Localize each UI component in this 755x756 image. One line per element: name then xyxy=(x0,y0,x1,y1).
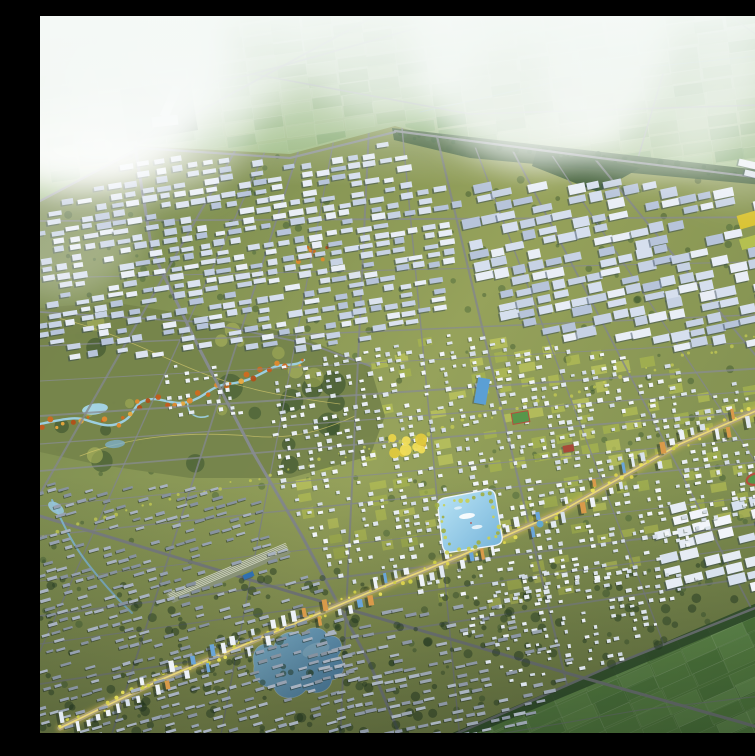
midrise-center xyxy=(548,545,553,550)
midrise-center xyxy=(312,532,317,537)
midrise-center xyxy=(466,447,471,451)
midrise-center xyxy=(276,388,280,393)
midrise-center xyxy=(712,442,716,445)
autumn-trees xyxy=(61,422,65,426)
midrise-center xyxy=(533,402,538,407)
midrise-center xyxy=(554,346,558,351)
midrise-center xyxy=(710,502,714,506)
boulevard-trees xyxy=(630,475,634,479)
midrise-center xyxy=(400,364,404,369)
midrise-center xyxy=(589,468,593,472)
city-forest-dots xyxy=(492,449,496,453)
boulevard-trees xyxy=(672,446,676,450)
boulevard-trees xyxy=(619,475,623,479)
midrise-center xyxy=(458,461,462,466)
boulevard-trees xyxy=(446,562,449,565)
avenue-trees xyxy=(618,375,622,379)
midrise-center xyxy=(401,427,405,431)
midrise-center xyxy=(470,581,474,585)
city-forest-dots xyxy=(465,306,472,313)
midrise-center xyxy=(524,594,530,599)
midrise-center xyxy=(559,488,565,493)
midrise-center xyxy=(300,412,304,417)
boulevard-trees xyxy=(114,696,118,700)
midrise-center xyxy=(621,539,625,543)
midrise-center xyxy=(292,483,297,487)
autumn-trees xyxy=(55,426,58,429)
midrise-center xyxy=(647,374,651,379)
midrise-south xyxy=(695,576,699,580)
midrise-center xyxy=(358,502,363,507)
avenue-trees xyxy=(593,385,596,388)
midrise-center xyxy=(477,565,483,570)
boulevard-trees xyxy=(608,481,611,484)
midrise-center xyxy=(385,352,390,357)
midrise-south xyxy=(594,640,598,644)
boulevard-trees xyxy=(423,567,425,569)
midrise-center xyxy=(582,370,587,374)
boulevard-trees xyxy=(513,535,517,539)
city-forest-dots xyxy=(482,293,486,297)
midrise-center xyxy=(503,348,507,352)
midrise-south xyxy=(659,590,663,594)
midrise-center xyxy=(462,364,466,367)
midrise-center xyxy=(296,392,301,397)
midrise-center xyxy=(577,403,581,407)
boulevard-trees xyxy=(121,691,125,695)
midrise-south xyxy=(561,621,565,625)
boulevard-trees xyxy=(646,460,649,463)
midrise-center xyxy=(483,413,487,417)
midrise-center xyxy=(544,401,549,406)
boulevard-trees xyxy=(567,506,570,509)
autumn-trees xyxy=(206,392,210,396)
avenue-trees xyxy=(427,432,431,436)
midrise-center xyxy=(357,481,361,484)
city-forest-dots xyxy=(385,437,389,441)
midrise-center xyxy=(558,541,563,546)
boulevard-trees xyxy=(503,541,506,544)
midrise-center xyxy=(275,381,279,385)
city-forest-dots xyxy=(252,251,256,255)
midrise-center xyxy=(326,554,331,559)
midrise-center xyxy=(686,542,690,547)
avenue-trees xyxy=(603,381,605,383)
midrise-center xyxy=(353,405,358,410)
avenue-trees xyxy=(345,456,347,458)
midrise-center xyxy=(684,528,689,533)
midrise-center xyxy=(437,451,441,455)
avenue-trees xyxy=(654,369,657,372)
midrise-center xyxy=(407,531,411,535)
avenue-trees xyxy=(287,468,289,470)
midrise-center xyxy=(336,490,340,494)
boulevard-trees xyxy=(200,662,202,664)
midrise-center xyxy=(584,387,588,391)
midrise-center xyxy=(355,534,359,538)
autumn-trees xyxy=(238,378,244,384)
avenue-trees xyxy=(628,371,630,373)
midrise-center xyxy=(555,405,559,409)
midrise-center xyxy=(508,370,512,374)
midrise-center xyxy=(323,539,328,544)
city-forest-dots xyxy=(725,241,732,248)
park-forest xyxy=(321,371,346,396)
avenue-trees xyxy=(76,522,79,525)
midrise-center xyxy=(700,495,704,499)
city-forest-dots xyxy=(638,432,643,437)
midrise-center xyxy=(390,367,394,372)
avenue-trees xyxy=(56,530,60,534)
lawn-blocks xyxy=(489,460,503,473)
city-forest-dots xyxy=(465,191,471,197)
city-forest-dots xyxy=(465,351,468,354)
midrise-center xyxy=(325,484,330,488)
autumn-trees xyxy=(274,361,279,366)
autumn-trees xyxy=(301,359,304,362)
midrise-center xyxy=(429,419,433,424)
midrise-south xyxy=(554,639,558,643)
midrise-center xyxy=(466,438,470,441)
midrise-center xyxy=(696,526,700,530)
midrise-center xyxy=(451,351,455,354)
midrise-center xyxy=(540,438,544,442)
avenue-trees xyxy=(219,487,222,490)
midrise-center xyxy=(362,395,366,399)
midrise-center xyxy=(695,411,699,415)
midrise-center xyxy=(297,384,301,387)
midrise-center xyxy=(356,548,360,552)
midrise-center xyxy=(449,401,454,406)
city-forest-dots xyxy=(98,472,103,477)
avenue-trees xyxy=(491,417,493,419)
avenue-trees xyxy=(554,393,557,396)
midrise-center xyxy=(396,517,400,522)
midrise-center xyxy=(581,424,585,428)
midrise-center xyxy=(510,506,514,511)
midrise-center xyxy=(611,428,615,432)
midrise-center xyxy=(281,485,285,489)
midrise-center xyxy=(696,421,700,425)
midrise-center xyxy=(617,388,621,392)
midrise-center xyxy=(519,505,524,510)
boulevard-trees xyxy=(546,521,548,523)
midrise-center xyxy=(283,424,287,428)
midrise-center xyxy=(589,477,593,481)
midrise-center xyxy=(735,390,739,393)
boulevard-trees xyxy=(379,592,383,596)
midrise-center xyxy=(724,460,729,465)
midrise-center xyxy=(445,381,448,384)
avenue-trees xyxy=(478,414,482,418)
boulevard-trees xyxy=(393,581,396,584)
city-forest-dots xyxy=(590,390,595,395)
park-forest xyxy=(217,374,243,400)
midrise-south xyxy=(536,643,539,646)
scene-svg xyxy=(40,16,755,740)
avenue-trees xyxy=(687,351,690,354)
midrise-center xyxy=(530,564,534,567)
midrise-center xyxy=(381,505,385,508)
midrise-center xyxy=(542,446,546,450)
midrise-center xyxy=(409,416,413,420)
city-forest-dots xyxy=(657,354,660,357)
midrise-center xyxy=(453,364,457,367)
midrise-south xyxy=(630,612,635,616)
minipark-autumn xyxy=(321,257,325,261)
midrise-center xyxy=(636,437,641,441)
midrise-center xyxy=(649,383,654,388)
city-forest-dots xyxy=(450,278,456,284)
avenue-trees xyxy=(177,493,180,496)
avenue-trees xyxy=(149,503,152,506)
midrise-center xyxy=(348,559,352,563)
midrise-center xyxy=(734,399,738,402)
midrise-center xyxy=(378,376,382,381)
avenue-trees xyxy=(258,478,260,480)
avenue-trees xyxy=(578,390,581,393)
midrise-center xyxy=(483,480,489,485)
midrise-center xyxy=(451,418,455,422)
avenue-trees xyxy=(671,363,674,366)
midrise-center xyxy=(436,579,440,583)
boulevard-trees xyxy=(408,579,412,583)
boulevard-trees xyxy=(723,418,726,421)
city-forest-dots xyxy=(687,378,694,385)
midrise-south xyxy=(643,571,647,575)
boulevard-trees xyxy=(353,591,356,594)
midrise-center xyxy=(420,543,424,548)
autumn-trees xyxy=(229,382,232,385)
autumn-trees xyxy=(87,416,90,419)
boulevard-trees xyxy=(340,598,342,600)
midrise-south xyxy=(626,574,630,578)
midrise-center xyxy=(529,555,533,559)
midrise-center xyxy=(303,429,308,434)
midrise-center xyxy=(590,537,594,541)
midrise-center xyxy=(479,574,483,578)
midrise-center xyxy=(685,421,690,425)
midrise-south xyxy=(501,625,505,629)
midrise-center xyxy=(368,492,373,497)
city-forest-dots xyxy=(217,294,224,301)
midrise-center xyxy=(373,394,377,398)
autumn-trees xyxy=(244,372,250,378)
city-forest-dots xyxy=(685,247,690,252)
midrise-center xyxy=(426,339,431,344)
boulevard-trees xyxy=(369,590,371,592)
boulevard-trees xyxy=(147,684,151,688)
midrise-center xyxy=(409,432,414,437)
autumn-trees xyxy=(47,416,53,422)
midrise-south xyxy=(583,566,588,570)
midrise-center xyxy=(703,457,708,461)
midrise-center xyxy=(609,465,614,470)
boulevard-trees xyxy=(554,516,558,520)
avenue-trees xyxy=(317,458,320,461)
midrise-south xyxy=(562,616,566,620)
midrise-center xyxy=(566,349,570,354)
midrise-center xyxy=(684,468,690,473)
midrise-center xyxy=(567,420,573,425)
midrise-center xyxy=(622,409,626,414)
midrise-center xyxy=(443,487,447,491)
autumn-trees xyxy=(128,412,133,417)
midrise-center xyxy=(563,458,568,463)
park-meadow xyxy=(87,447,103,463)
midrise-center xyxy=(417,415,423,420)
avenue-trees xyxy=(141,504,143,506)
avenue-trees xyxy=(645,367,647,369)
midrise-center xyxy=(713,447,719,452)
park-forest xyxy=(317,413,340,436)
midrise-center xyxy=(750,486,755,491)
avenue-trees xyxy=(515,407,518,410)
park-forest xyxy=(249,407,262,420)
midrise-center xyxy=(405,524,409,528)
midrise-center xyxy=(277,470,283,475)
autumn-trees xyxy=(135,399,140,404)
midrise-center xyxy=(520,511,526,516)
midrise-center xyxy=(501,583,505,587)
midrise-center xyxy=(387,358,392,363)
avenue-trees xyxy=(710,351,713,354)
midrise-center xyxy=(395,464,400,469)
midrise-center xyxy=(716,470,720,475)
midrise-center xyxy=(296,511,300,516)
midrise-center xyxy=(548,424,552,428)
boulevard-trees xyxy=(614,473,618,477)
midrise-center xyxy=(418,470,423,475)
midrise-center xyxy=(498,492,502,496)
midrise-center xyxy=(505,362,510,367)
midrise-center xyxy=(652,534,658,539)
midrise-center xyxy=(320,525,324,530)
midrise-center xyxy=(441,428,446,433)
midrise-south xyxy=(500,665,504,668)
midrise-south xyxy=(665,573,669,577)
midrise-center xyxy=(361,508,365,512)
autumn-trees xyxy=(121,416,125,420)
boulevard-trees xyxy=(329,602,331,604)
midrise-south xyxy=(511,615,515,619)
midrise-south xyxy=(506,647,510,650)
city-forest-dots xyxy=(510,344,516,350)
midrise-south xyxy=(543,628,547,631)
avenue-trees xyxy=(363,446,366,449)
city-forest-dots xyxy=(628,441,633,446)
midrise-center xyxy=(400,373,406,378)
midrise-south xyxy=(557,585,561,589)
midrise-south xyxy=(677,588,681,591)
midrise-south xyxy=(495,642,500,646)
midrise-center xyxy=(404,403,409,408)
boulevard-trees xyxy=(348,597,350,599)
midrise-center xyxy=(327,370,332,375)
midrise-center xyxy=(590,355,595,360)
city-forest-dots xyxy=(485,464,488,467)
midrise-center xyxy=(601,474,605,478)
midrise-center xyxy=(673,402,677,405)
midrise-center xyxy=(676,538,681,542)
boulevard-trees xyxy=(675,444,678,447)
avenue-trees xyxy=(168,498,171,501)
midrise-south xyxy=(594,625,598,629)
lawn-blocks xyxy=(494,351,508,363)
city-forest-dots xyxy=(135,254,138,257)
midrise-center xyxy=(731,491,735,496)
boulevard-trees xyxy=(570,499,572,501)
midrise-center xyxy=(474,437,478,441)
avenue-trees xyxy=(730,345,734,349)
autumn-trees xyxy=(102,416,107,421)
midrise-center xyxy=(373,521,379,526)
midrise-center xyxy=(311,471,315,475)
midrise-center xyxy=(285,455,290,460)
midrise-center xyxy=(639,514,644,518)
midrise-center xyxy=(736,460,740,464)
midrise-center xyxy=(613,366,617,371)
boulevard-trees xyxy=(740,409,743,412)
midrise-center xyxy=(541,377,546,381)
city-forest-dots xyxy=(283,222,290,229)
midrise-center xyxy=(564,580,569,584)
midrise-center xyxy=(676,484,680,488)
midrise-center xyxy=(542,396,546,399)
midrise-center xyxy=(399,419,403,423)
midrise-center xyxy=(663,419,667,423)
midrise-center xyxy=(323,416,328,420)
avenue-trees xyxy=(368,448,370,450)
midrise-south xyxy=(589,649,593,653)
midrise-center xyxy=(606,391,610,395)
midrise-south xyxy=(633,627,637,631)
midrise-center xyxy=(528,496,532,500)
midrise-center xyxy=(579,480,583,484)
midrise-south xyxy=(471,630,475,634)
midrise-center xyxy=(430,427,435,432)
midrise-center xyxy=(272,420,276,424)
city-forest-dots xyxy=(555,196,560,201)
midrise-center xyxy=(459,468,464,473)
avenue-trees xyxy=(94,518,97,521)
midrise-center xyxy=(618,456,623,461)
midrise-south xyxy=(654,623,657,626)
midrise-center xyxy=(379,437,384,442)
midrise-center xyxy=(490,403,494,407)
midrise-center xyxy=(468,384,473,389)
boulevard-trees xyxy=(450,554,452,556)
avenue-trees xyxy=(570,394,573,397)
park-meadow xyxy=(215,334,227,346)
midrise-center xyxy=(468,337,472,342)
midrise-center xyxy=(523,405,527,409)
midrise-center xyxy=(409,546,414,551)
boulevard-trees xyxy=(706,428,709,431)
midrise-center xyxy=(497,440,501,444)
midrise-center xyxy=(318,448,322,452)
midrise-center xyxy=(647,497,651,501)
midrise-center xyxy=(664,531,669,536)
midrise-center xyxy=(643,422,647,426)
midrise-center xyxy=(345,550,349,555)
midrise-center xyxy=(344,352,350,357)
midrise-center xyxy=(573,441,579,446)
midrise-center xyxy=(343,407,348,412)
boulevard-trees xyxy=(433,561,437,565)
midrise-center xyxy=(746,451,750,455)
midrise-center xyxy=(702,450,706,455)
